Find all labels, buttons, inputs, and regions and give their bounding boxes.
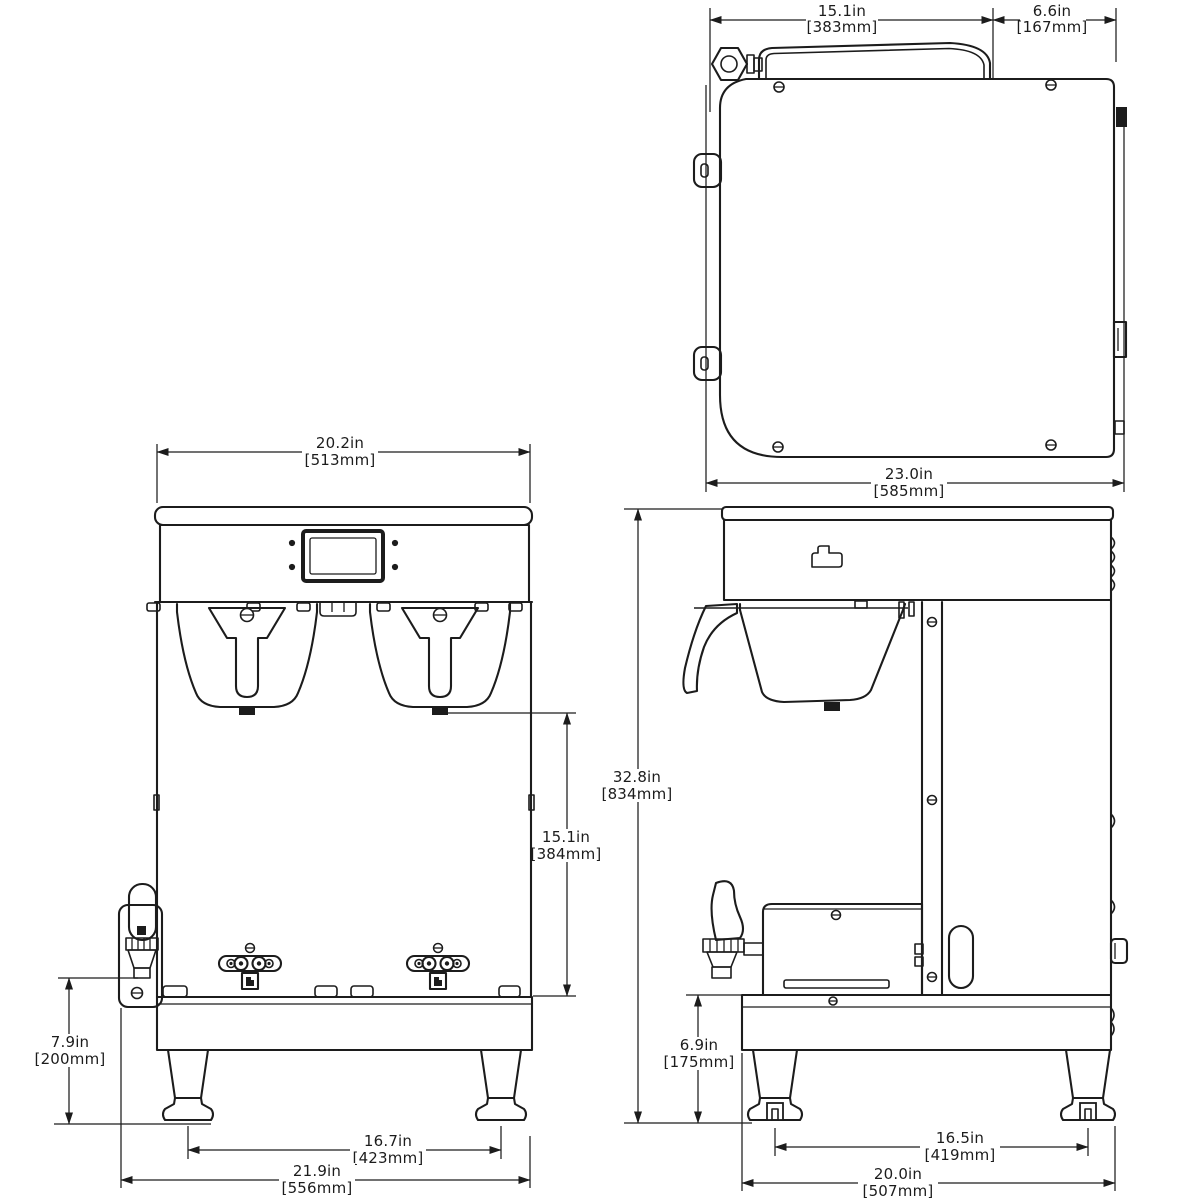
front-right-foot	[476, 1050, 526, 1120]
side-faucet-assembly	[703, 881, 763, 978]
front-view: 20.2in [513mm] 15.1in [384mm] 7.9in [200…	[32, 434, 602, 1197]
side-funnel-handle	[683, 604, 737, 693]
side-support-column	[915, 602, 942, 995]
side-view: 32.8in [834mm] 6.9in [175mm] 16.5in [419…	[598, 507, 1127, 1200]
side-funnel-body	[740, 604, 905, 702]
top-view-lid	[759, 43, 990, 79]
button-pill	[407, 956, 469, 971]
side-base	[742, 995, 1111, 1050]
side-funnel	[683, 601, 914, 711]
faucet-collar	[703, 939, 744, 952]
right-button-cluster	[407, 944, 469, 990]
dim-top-depth: 23.0in [585mm]	[706, 85, 1124, 500]
side-server	[763, 904, 922, 995]
top-view-left-tabs	[694, 154, 721, 380]
faucet-spout	[128, 950, 156, 968]
dim-side-feet-span-label-in: 16.5in	[936, 1129, 984, 1147]
dim-front-body-width: 20.2in [513mm]	[157, 434, 530, 503]
dim-side-base-height: 6.9in [175mm]	[660, 995, 745, 1123]
side-hood	[724, 520, 1111, 600]
dim-front-width-label-in: 20.2in	[316, 434, 364, 452]
switch-block	[1116, 107, 1127, 127]
dim-top-depth-label-mm: [585mm]	[874, 482, 945, 500]
dim-side-overall-height: 32.8in [834mm]	[598, 509, 752, 1123]
dim-top-width-label-mm: [383mm]	[807, 18, 878, 36]
top-view-right-details	[1114, 107, 1127, 434]
top-view-body-outline	[720, 79, 1114, 457]
dim-front-clearance: 15.1in [384mm]	[448, 713, 602, 996]
faucet-spout	[707, 952, 737, 967]
faucet-shank	[744, 943, 763, 955]
front-top-cap	[155, 507, 532, 525]
dim-front-base-height-label-mm: [200mm]	[35, 1050, 106, 1068]
dim-side-overall-depth: 20.0in [507mm]	[742, 1053, 1115, 1200]
dim-side-base-height-label-in: 6.9in	[680, 1036, 719, 1054]
dim-front-feet-span: 16.7in [423mm]	[188, 1126, 501, 1167]
left-button-cluster	[219, 944, 281, 990]
dim-front-clearance-label-mm: [384mm]	[531, 845, 602, 863]
indicator-dot	[289, 540, 295, 546]
indicator-dot	[392, 540, 398, 546]
funnel-drip-nub	[239, 706, 255, 715]
dim-side-depth-label-mm: [507mm]	[863, 1182, 934, 1200]
dim-front-overall-width: 21.9in [556mm]	[121, 1008, 530, 1197]
dim-side-depth-label-in: 20.0in	[874, 1165, 922, 1183]
dim-top-rear-offset: 6.6in [167mm]	[993, 2, 1116, 62]
faucet-spout-tip	[134, 968, 150, 978]
side-right-foot	[1061, 1050, 1115, 1120]
front-center-bracket	[320, 602, 356, 616]
indicator-dot	[392, 564, 398, 570]
funnel-drip-nub	[432, 706, 448, 715]
front-display-panel	[289, 531, 398, 581]
front-faucet-assembly	[119, 884, 162, 1007]
front-left-foot	[163, 1050, 213, 1120]
dim-front-clearance-label-in: 15.1in	[542, 828, 590, 846]
dim-top-depth-label-in: 23.0in	[885, 465, 933, 483]
dim-side-feet-span: 16.5in [419mm]	[775, 1128, 1088, 1164]
technical-drawing-page: 15.1in [383mm] 6.6in [167mm] 23.0in [585…	[0, 0, 1200, 1200]
top-view-screws	[773, 80, 1056, 452]
top-view: 15.1in [383mm] 6.6in [167mm] 23.0in [585…	[694, 2, 1127, 500]
top-view-faucet	[712, 48, 762, 80]
dim-side-height-label-mm: [834mm]	[602, 785, 673, 803]
hood-vent-detail	[812, 546, 842, 567]
faucet-hex-nut	[712, 48, 747, 80]
indicator-dot	[289, 564, 295, 570]
dim-front-width-label-mm: [513mm]	[305, 451, 376, 469]
side-oval-handle	[949, 926, 973, 988]
dim-front-overall-width-label-mm: [556mm]	[282, 1179, 353, 1197]
dim-top-width: 15.1in [383mm]	[710, 2, 993, 112]
side-left-foot	[748, 1050, 802, 1120]
right-brew-funnel	[370, 604, 510, 715]
dim-front-base-height-label-in: 7.9in	[51, 1033, 90, 1051]
front-base-tabs	[163, 986, 520, 997]
drawing-canvas: 15.1in [383mm] 6.6in [167mm] 23.0in [585…	[0, 0, 1200, 1200]
dim-side-base-height-label-mm: [175mm]	[664, 1053, 735, 1071]
funnel-drip-nub	[824, 702, 840, 711]
faucet-handle	[712, 881, 743, 940]
faucet-spout-tip	[712, 967, 731, 978]
front-upper-body	[160, 525, 529, 602]
dim-front-feet-span-label-mm: [423mm]	[353, 1149, 424, 1167]
dim-top-rear-label-mm: [167mm]	[1017, 18, 1088, 36]
dim-front-feet-span-label-in: 16.7in	[364, 1132, 412, 1150]
button-pill	[219, 956, 281, 971]
front-base	[157, 997, 532, 1050]
side-top-cap	[722, 507, 1113, 520]
dim-front-overall-width-label-in: 21.9in	[293, 1162, 341, 1180]
dim-side-height-label-in: 32.8in	[613, 768, 661, 786]
dim-side-feet-span-label-mm: [419mm]	[925, 1146, 996, 1164]
left-brew-funnel	[177, 604, 317, 715]
side-rear-knob	[1111, 939, 1127, 963]
